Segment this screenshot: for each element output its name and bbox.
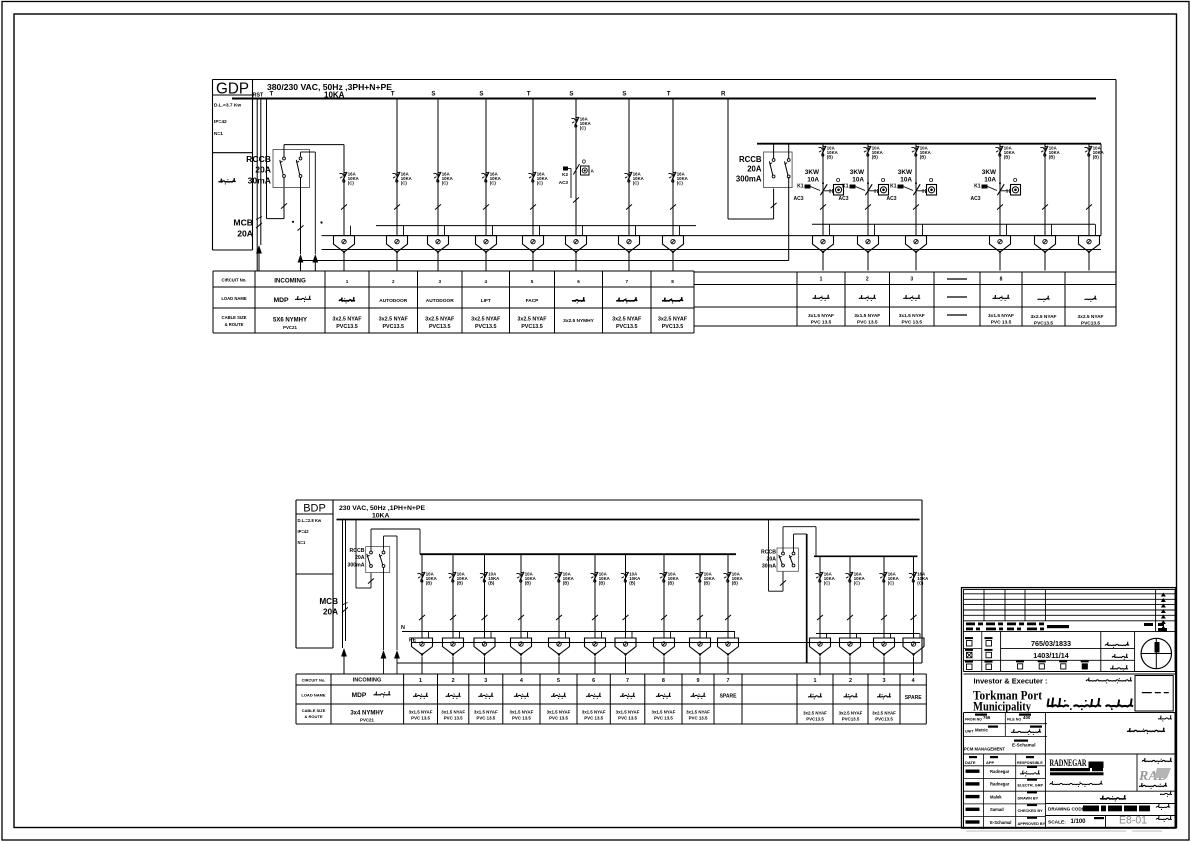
svg-text:(C): (C) [580, 126, 587, 131]
svg-text:& ROUTE: & ROUTE [305, 714, 323, 719]
svg-text:E8-01: E8-01 [1119, 815, 1147, 827]
svg-text:PVC13.5: PVC13.5 [806, 717, 824, 722]
svg-text:3x1.5 NYAF: 3x1.5 NYAF [616, 710, 640, 715]
svg-text:3x2.5 NYAF: 3x2.5 NYAF [1031, 314, 1057, 320]
svg-text:(C): (C) [348, 181, 355, 186]
svg-text:7: 7 [727, 678, 730, 684]
svg-text:1: 1 [419, 678, 422, 684]
svg-text:MDP: MDP [352, 692, 367, 699]
svg-text:PVC13.5: PVC13.5 [1081, 321, 1101, 327]
svg-text:3KW: 3KW [982, 169, 997, 176]
svg-text:(B): (B) [872, 155, 879, 160]
svg-text:O: O [929, 178, 934, 184]
svg-text:3x4 NYMHY: 3x4 NYMHY [350, 711, 383, 717]
svg-text:AUTODOOR: AUTODOOR [379, 298, 407, 304]
svg-text:3x2.5 NYAF: 3x2.5 NYAF [839, 711, 863, 716]
svg-text:3x2.5 NYAF: 3x2.5 NYAF [425, 317, 455, 323]
svg-text:PVC 13.5: PVC 13.5 [584, 716, 603, 721]
svg-text:2: 2 [452, 678, 455, 684]
svg-text:(C): (C) [490, 181, 497, 186]
svg-text:(B): (B) [704, 581, 711, 586]
svg-text:LOAD NAME: LOAD NAME [221, 296, 247, 301]
svg-text:10A: 10A [807, 177, 819, 184]
svg-text:INCOMING: INCOMING [274, 278, 306, 285]
svg-text:S: S [622, 91, 626, 98]
svg-text:(C): (C) [401, 181, 408, 186]
svg-text:3x1.5 NYAF: 3x1.5 NYAF [474, 710, 498, 715]
svg-text:(B): (B) [732, 581, 739, 586]
svg-text:T: T [270, 91, 274, 98]
svg-text:PVC 13.5: PVC 13.5 [689, 716, 708, 721]
svg-text:PVC 13.5: PVC 13.5 [549, 716, 568, 721]
svg-text:3x2.5 NYAF: 3x2.5 NYAF [471, 317, 501, 323]
svg-text:(B): (B) [629, 581, 636, 586]
svg-text:O: O [836, 178, 841, 184]
svg-text:1403/11/14: 1403/11/14 [1033, 651, 1069, 660]
svg-text:MCB: MCB [233, 218, 253, 228]
svg-text:O: O [881, 178, 886, 184]
svg-text:3: 3 [484, 678, 487, 684]
svg-text:(B): (B) [668, 581, 675, 586]
svg-text:D.L.=2.8 Kw: D.L.=2.8 Kw [298, 518, 322, 523]
svg-text:D.L.=3.7 Kw: D.L.=3.7 Kw [214, 103, 241, 109]
svg-text:3x2.5 NYMHY: 3x2.5 NYMHY [563, 318, 594, 324]
svg-text:PCM MANAGEMENT: PCM MANAGEMENT [964, 747, 1005, 752]
svg-text:(B): (B) [1093, 155, 1100, 160]
svg-text:H: H [1006, 189, 1010, 195]
svg-text:Malek: Malek [990, 794, 1002, 799]
svg-text:PVC13.5: PVC13.5 [521, 324, 543, 330]
svg-text:PVC13.5: PVC13.5 [662, 324, 684, 330]
svg-text:PVC 13.5: PVC 13.5 [901, 320, 922, 326]
svg-text:3x2.5 NYAF: 3x2.5 NYAF [1078, 314, 1104, 320]
svg-text:6: 6 [592, 678, 595, 684]
svg-text:1: 1 [814, 678, 817, 684]
svg-text:N: N [401, 625, 405, 631]
svg-text:3: 3 [438, 279, 441, 284]
svg-text:(C): (C) [633, 181, 640, 186]
svg-text:4: 4 [484, 279, 487, 284]
svg-text:IP=42: IP=42 [298, 529, 310, 534]
svg-text:Samad: Samad [990, 807, 1004, 812]
svg-text:PVC13.5: PVC13.5 [336, 324, 358, 330]
svg-text:RCCB: RCCB [739, 155, 762, 164]
svg-text:5X6 NYMHY: 5X6 NYMHY [273, 318, 307, 324]
svg-text:CHECKED BY: CHECKED BY [1018, 809, 1044, 813]
svg-text:3KW: 3KW [850, 169, 865, 176]
svg-text:PVC 13.5: PVC 13.5 [444, 716, 463, 721]
svg-text:(B): (B) [457, 581, 464, 586]
svg-text:7: 7 [625, 279, 628, 284]
svg-text:K1: K1 [797, 184, 804, 190]
svg-text:APPROVED BY: APPROVED BY [1018, 822, 1046, 826]
svg-text:CABLE SIZE: CABLE SIZE [302, 708, 326, 713]
svg-text:7: 7 [626, 678, 629, 684]
svg-text:& ROUTE: & ROUTE [225, 322, 244, 327]
svg-text:(C): (C) [824, 581, 831, 586]
svg-text:E-Schamal: E-Schamal [990, 820, 1011, 825]
svg-text:K1: K1 [974, 184, 981, 190]
svg-text:DRAWN BY: DRAWN BY [1018, 796, 1039, 800]
svg-text:20A: 20A [747, 165, 762, 174]
svg-text:765/03/1833: 765/03/1833 [1031, 639, 1071, 648]
svg-text:3x2.5 NYAF: 3x2.5 NYAF [803, 711, 827, 716]
svg-text:(B): (B) [599, 581, 606, 586]
svg-text:S: S [569, 91, 573, 98]
svg-text:T: T [527, 91, 531, 98]
svg-text:S: S [479, 91, 483, 98]
svg-text:Radnegar: Radnegar [990, 769, 1010, 774]
svg-text:20A: 20A [766, 557, 776, 563]
svg-text:MCB: MCB [319, 597, 338, 606]
svg-text:30mA: 30mA [762, 564, 776, 570]
svg-text:INCOMING: INCOMING [353, 678, 382, 684]
svg-text:(C): (C) [888, 581, 895, 586]
svg-text:CIRCUIT No.: CIRCUIT No. [222, 278, 247, 283]
svg-text:8: 8 [671, 279, 674, 284]
svg-text:FACP: FACP [526, 298, 540, 304]
svg-text:T: T [391, 91, 395, 98]
svg-text:(B): (B) [1049, 155, 1056, 160]
svg-text:PVC13.5: PVC13.5 [875, 717, 893, 722]
svg-text:AUTODOOR: AUTODOOR [426, 298, 454, 304]
svg-text:PVC 13.5: PVC 13.5 [512, 716, 531, 721]
svg-text:APP: APP [986, 760, 995, 765]
svg-text:DATE: DATE [965, 760, 976, 765]
svg-text:(C): (C) [854, 581, 861, 586]
svg-text:5: 5 [531, 279, 534, 284]
svg-text:3x2.5 NYAF: 3x2.5 NYAF [612, 317, 642, 323]
svg-text:FROM NO: FROM NO [965, 718, 982, 722]
svg-text:3KW: 3KW [898, 169, 913, 176]
svg-text:PVC13.5: PVC13.5 [842, 717, 860, 722]
svg-text:3x1.5 NYAF: 3x1.5 NYAF [686, 710, 710, 715]
svg-text:766: 766 [983, 715, 991, 720]
svg-text:RCCB: RCCB [246, 154, 271, 164]
svg-text:3x2.5 NYAF: 3x2.5 NYAF [332, 317, 362, 323]
svg-text:LOAD NAME: LOAD NAME [301, 693, 326, 698]
svg-text:H: H [922, 189, 926, 195]
svg-text:PVC13.5: PVC13.5 [475, 324, 497, 330]
svg-text:3x1.5 NYAF: 3x1.5 NYAF [988, 313, 1014, 319]
svg-text:PVC 13.5: PVC 13.5 [411, 716, 430, 721]
svg-text:3x1.5 NYAF: 3x1.5 NYAF [441, 710, 465, 715]
svg-text:3x2.5 NYAF: 3x2.5 NYAF [658, 317, 688, 323]
svg-text:3x2.5 NYAF: 3x2.5 NYAF [872, 711, 896, 716]
svg-text:GDP: GDP [216, 81, 249, 98]
svg-text:DRAWING CODE:: DRAWING CODE: [1048, 807, 1087, 812]
svg-text:PVC13.5: PVC13.5 [616, 324, 638, 330]
svg-text:IP=42: IP=42 [214, 119, 227, 125]
svg-text:PVC21: PVC21 [360, 718, 374, 723]
svg-text:N=1: N=1 [298, 540, 306, 545]
svg-text:N=1: N=1 [214, 131, 223, 137]
svg-text:(B): (B) [920, 155, 927, 160]
svg-text:6: 6 [577, 279, 580, 284]
svg-text:RCCB: RCCB [761, 550, 776, 556]
svg-text:BDP: BDP [303, 503, 326, 515]
svg-text:RADNEGAR: RADNEGAR [1050, 759, 1087, 769]
svg-text:PVC13.5: PVC13.5 [382, 324, 404, 330]
svg-text:(B): (B) [426, 581, 433, 586]
svg-text:PVC13.5: PVC13.5 [1034, 321, 1054, 327]
svg-text:(B): (B) [525, 581, 532, 586]
svg-text:10A: 10A [984, 177, 996, 184]
svg-text:O: O [582, 160, 586, 166]
svg-text:K2: K2 [562, 172, 568, 177]
svg-text:Municipality: Municipality [973, 700, 1032, 714]
svg-text:20A: 20A [237, 229, 253, 239]
svg-text:30mA: 30mA [248, 176, 271, 186]
svg-text:Investor & Executer :: Investor & Executer : [974, 677, 1048, 686]
svg-text:CABLE SIZE: CABLE SIZE [222, 315, 247, 320]
svg-text:R: R [721, 91, 726, 98]
svg-text:2: 2 [866, 277, 869, 283]
svg-text:PVC21: PVC21 [283, 325, 297, 330]
svg-text:E-Schamal: E-Schamal [1012, 743, 1036, 748]
svg-text:3x1.5 NYAF: 3x1.5 NYAF [409, 710, 433, 715]
svg-text:H: H [874, 189, 878, 195]
svg-text:MDP: MDP [273, 297, 289, 304]
svg-text:PVC 13.5: PVC 13.5 [857, 320, 878, 326]
svg-text:1: 1 [346, 279, 349, 284]
svg-text:230 VAC, 50Hz ,1PH+N+PE: 230 VAC, 50Hz ,1PH+N+PE [339, 505, 425, 512]
svg-text:K1: K1 [842, 184, 849, 190]
svg-text:3x1.5 NYAF: 3x1.5 NYAF [652, 710, 676, 715]
svg-text:1: 1 [820, 277, 823, 283]
svg-text:(B): (B) [1004, 155, 1011, 160]
svg-text:(C): (C) [537, 181, 544, 186]
svg-text:8: 8 [662, 678, 665, 684]
svg-text:S: S [431, 91, 435, 98]
svg-text:9: 9 [697, 678, 700, 684]
svg-text:AC3: AC3 [793, 196, 803, 202]
svg-text:400: 400 [1023, 715, 1031, 720]
svg-text:T: T [667, 91, 671, 98]
svg-text:AC3: AC3 [886, 196, 896, 202]
svg-text:3x1.5 NYAF: 3x1.5 NYAF [547, 710, 571, 715]
svg-text:3x1.5 NYAF: 3x1.5 NYAF [854, 313, 880, 319]
svg-text:UNIT: UNIT [965, 730, 974, 734]
svg-text:3x1.5 NYAF: 3x1.5 NYAF [510, 710, 534, 715]
svg-text:20A: 20A [323, 608, 338, 617]
svg-text:RESPONSIBLE: RESPONSIBLE [1017, 761, 1043, 765]
svg-text:3: 3 [910, 277, 913, 283]
svg-text:1/100: 1/100 [1070, 819, 1086, 825]
svg-text:SPARE: SPARE [905, 695, 923, 701]
svg-text:RCCB: RCCB [350, 548, 365, 554]
svg-text:2: 2 [392, 279, 395, 284]
svg-text:SPARE: SPARE [720, 694, 738, 700]
svg-text:10A: 10A [900, 177, 912, 184]
svg-text:20A: 20A [355, 555, 365, 561]
svg-text:3x1.5 NYAF: 3x1.5 NYAF [808, 313, 834, 319]
svg-text:3x2.5 NYAF: 3x2.5 NYAF [517, 317, 547, 323]
svg-text:CIRCUIT No.: CIRCUIT No. [302, 678, 326, 683]
svg-text:H: H [829, 189, 833, 195]
svg-text:5: 5 [557, 678, 560, 684]
svg-text:300mA: 300mA [736, 175, 762, 184]
svg-text:2: 2 [849, 678, 852, 684]
svg-text:10KA: 10KA [372, 513, 389, 520]
svg-text:FILE NO: FILE NO [1007, 718, 1021, 722]
svg-text:3x2.5 NYAF: 3x2.5 NYAF [379, 317, 409, 323]
svg-text:K1: K1 [890, 184, 897, 190]
svg-text:Metric: Metric [975, 728, 988, 733]
svg-text:PVC 13.5: PVC 13.5 [811, 320, 832, 326]
svg-text:PVC13.5: PVC13.5 [429, 324, 451, 330]
svg-text:PVC 13.5: PVC 13.5 [476, 716, 495, 721]
svg-text:O: O [1013, 178, 1018, 184]
svg-text:PVC 13.5: PVC 13.5 [654, 716, 673, 721]
svg-text:20A: 20A [255, 165, 271, 175]
svg-text:(C): (C) [917, 581, 924, 586]
svg-text:300mA: 300mA [347, 563, 364, 569]
svg-text:(B): (B) [563, 581, 570, 586]
svg-text:4: 4 [520, 678, 523, 684]
svg-text:4: 4 [912, 678, 915, 684]
svg-text:AC3: AC3 [838, 196, 848, 202]
svg-text:AC3: AC3 [559, 180, 569, 185]
svg-text:(C): (C) [442, 181, 449, 186]
svg-text:LIFT: LIFT [481, 298, 491, 304]
svg-text:3x1.5 NYAF: 3x1.5 NYAF [899, 313, 925, 319]
svg-text:PVC 13.5: PVC 13.5 [618, 716, 637, 721]
svg-text:3: 3 [883, 678, 886, 684]
svg-text:Radnegar: Radnegar [990, 782, 1010, 787]
svg-text:SCALE:: SCALE: [1048, 820, 1066, 826]
svg-text:3x1.5 NYAF: 3x1.5 NYAF [582, 710, 606, 715]
svg-text:8: 8 [1000, 277, 1003, 283]
svg-text:10A: 10A [852, 177, 864, 184]
svg-text:3KW: 3KW [805, 169, 820, 176]
svg-text:(B): (B) [827, 155, 834, 160]
svg-text:ELECTR. GRP: ELECTR. GRP [1018, 784, 1044, 788]
svg-text:(B): (B) [488, 581, 495, 586]
svg-text:AC3: AC3 [970, 196, 980, 202]
svg-text:PVC 13.5: PVC 13.5 [991, 320, 1012, 326]
svg-text:(C): (C) [677, 181, 684, 186]
